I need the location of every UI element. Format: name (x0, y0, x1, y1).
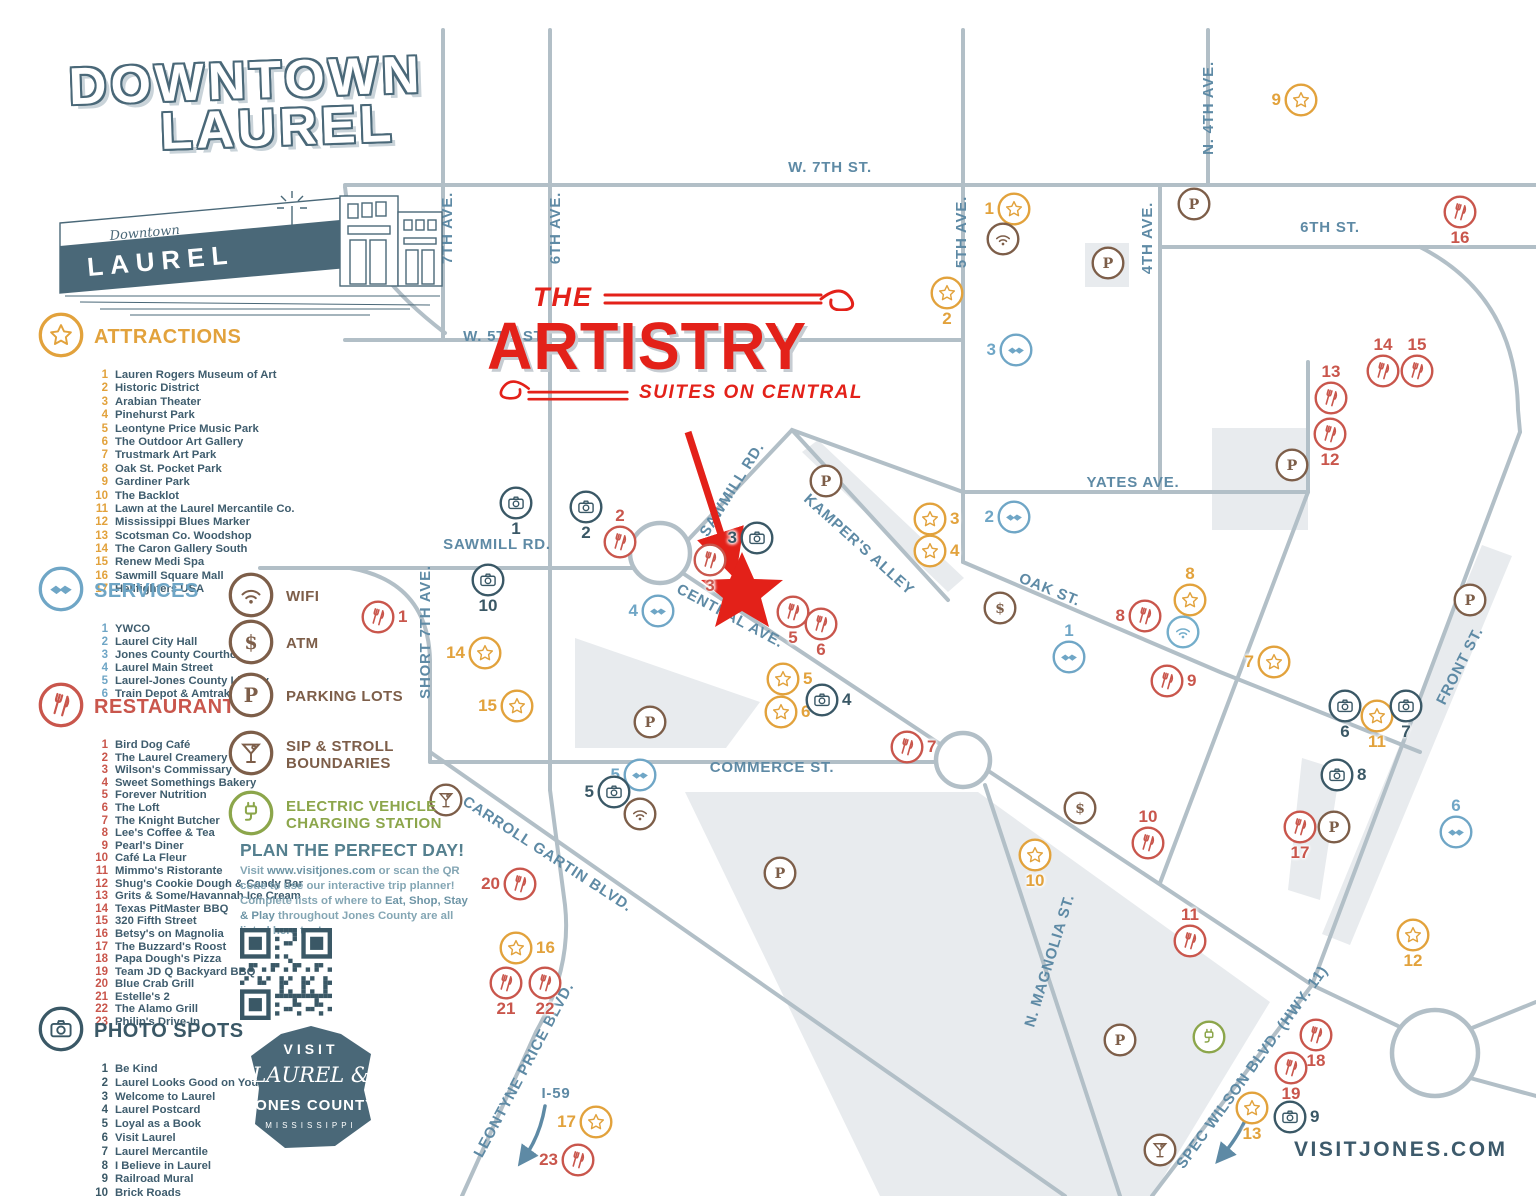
legend-item: 5Leontyne Price Music Park (86, 423, 268, 436)
artistry-logo: THE ARTISTRY SUITES ON CENTRAL (487, 282, 863, 406)
parking-map-icon (763, 856, 797, 890)
photo-spot-marker-9: 9 (1273, 1100, 1307, 1134)
restaurant-marker-12: 12 (1313, 417, 1347, 451)
photo-spot-marker-8: 8 (1320, 758, 1354, 792)
service-marker-4: 4 (641, 594, 675, 628)
restaurant-marker-15: 15 (1400, 354, 1434, 388)
legend-item: 3Welcome to Laurel (86, 1091, 268, 1105)
photo-spots-camera-icon (38, 1006, 84, 1057)
photo-spot-marker-7: 7 (1389, 689, 1423, 723)
martini-icon (228, 730, 274, 781)
map-title: DOWNTOWN LAUREL (50, 51, 443, 160)
restaurant-marker-8: 8 (1128, 599, 1162, 633)
parking-icon (228, 672, 274, 723)
parking-map-icon (809, 464, 843, 498)
wifi-map-icon (986, 222, 1020, 256)
legend-item: 5Loyal as a Book (86, 1118, 268, 1132)
map-title-line2: LAUREL (112, 99, 443, 158)
qr-code (240, 928, 332, 1020)
badge-laurel: LAUREL & (251, 1063, 369, 1087)
atm-map-icon (1063, 791, 1097, 825)
legend-item: 1Lauren Rogers Museum of Art (86, 369, 268, 382)
wifi-icon (228, 572, 274, 623)
restaurant-marker-22: 22 (528, 966, 562, 1000)
legend-photo-spots: PHOTO SPOTS 1Be Kind2Laurel Looks Good o… (38, 1006, 268, 1201)
restaurant-marker-14: 14 (1366, 354, 1400, 388)
artistry-name: ARTISTRY (487, 313, 840, 380)
martini-map-icon (1143, 1133, 1177, 1167)
photo-spot-marker-1: 1 (499, 486, 533, 520)
attraction-marker-15: 15 (500, 689, 534, 723)
attraction-marker-7: 7 (1257, 645, 1291, 679)
restaurant-marker-9: 9 (1150, 664, 1184, 698)
legend-item: 3Arabian Theater (86, 396, 268, 409)
restaurant-marker-18: 18 (1299, 1018, 1333, 1052)
legend-item: 7Laurel Mercantile (86, 1146, 268, 1160)
ev-map-icon (1192, 1020, 1226, 1054)
badge-jones: JONES COUNTY (246, 1097, 376, 1114)
services-handshake-icon (38, 566, 84, 617)
legend-item: 11Lawn at the Laurel Mercantile Co. (86, 503, 268, 516)
attractions-title: ATTRACTIONS (94, 326, 241, 349)
restaurants-fork-icon (38, 682, 84, 733)
service-marker-2: 2 (997, 500, 1031, 534)
legend-item: 10Brick Roads (86, 1187, 268, 1201)
attraction-marker-9: 9 (1284, 83, 1318, 117)
visit-jones-badge: VISIT LAUREL & JONES COUNTY MISSISSIPPI (243, 1022, 379, 1156)
attraction-marker-3: 3 (913, 502, 947, 536)
attraction-marker-17: 17 (579, 1105, 613, 1139)
legend-item: 4Pinehurst Park (86, 409, 268, 422)
restaurant-marker-21: 21 (489, 966, 523, 1000)
downtown-building-illustration: Downtown LAUREL (40, 168, 455, 318)
attraction-marker-13: 13 (1235, 1091, 1269, 1125)
attraction-marker-8: 8 (1173, 583, 1207, 617)
restaurant-marker-17: 17 (1283, 810, 1317, 844)
legend-item: 9Railroad Mural (86, 1173, 268, 1187)
amenity-martini: SIP & STROLL BOUNDARIES (228, 730, 446, 781)
photo-spot-marker-2: 2 (569, 490, 603, 524)
amenity-wifi: WIFI (228, 572, 446, 623)
attraction-marker-14: 14 (468, 636, 502, 670)
attraction-marker-2: 2 (930, 276, 964, 310)
restaurant-marker-20: 20 (503, 867, 537, 901)
restaurant-marker-16: 16 (1443, 195, 1477, 229)
amenity-atm: ATM (228, 619, 446, 670)
legend-item: 2Historic District (86, 382, 268, 395)
restaurants-title: RESTAURANTS (94, 696, 249, 719)
photo-spots-title: PHOTO SPOTS (94, 1020, 244, 1043)
parking-map-icon (1453, 583, 1487, 617)
attraction-marker-12: 12 (1396, 918, 1430, 952)
legend-item: 8I Believe in Laurel (86, 1160, 268, 1174)
services-title: SERVICES (94, 580, 199, 603)
badge-visit: VISIT (283, 1041, 338, 1057)
atm-map-icon (983, 591, 1017, 625)
legend-item: 6The Outdoor Art Gallery (86, 436, 268, 449)
legend-attractions: ATTRACTIONS 1Lauren Rogers Museum of Art… (38, 312, 268, 597)
website-url: VISITJONES.COM (1294, 1138, 1508, 1162)
attraction-marker-1: 1 (997, 192, 1031, 226)
legend-item: 6Visit Laurel (86, 1132, 268, 1146)
legend-item: 10The Backlot (86, 490, 268, 503)
parking-map-icon (633, 705, 667, 739)
amenities-legend: WIFIATMPARKING LOTSSIP & STROLL BOUNDARI… (228, 572, 438, 832)
parking-map-icon (1177, 187, 1211, 221)
restaurant-marker-19: 19 (1274, 1051, 1308, 1085)
legend-item: 2Laurel Looks Good on You (86, 1077, 268, 1091)
restaurant-marker-11: 11 (1173, 924, 1207, 958)
legend-item: 13Scotsman Co. Woodshop (86, 530, 268, 543)
restaurant-marker-7: 7 (890, 730, 924, 764)
wifi-map-icon (1166, 615, 1200, 649)
legend-item: 4Laurel Postcard (86, 1104, 268, 1118)
attraction-marker-10: 10 (1018, 838, 1052, 872)
photo-spot-marker-10: 10 (471, 563, 505, 597)
ev-icon (228, 790, 274, 841)
amenity-ev: ELECTRIC VEHICLE CHARGING STATION (228, 790, 446, 841)
photo-spot-marker-3: 3 (740, 521, 774, 555)
restaurant-marker-10: 10 (1131, 826, 1165, 860)
attraction-marker-16: 16 (499, 931, 533, 965)
parking-map-icon (1103, 1023, 1137, 1057)
service-marker-1: 1 (1052, 640, 1086, 674)
restaurant-marker-13: 13 (1314, 381, 1348, 415)
photo-spot-marker-6: 6 (1328, 689, 1362, 723)
legend-item: 12Mississippi Blues Marker (86, 516, 268, 529)
attraction-marker-4: 4 (913, 534, 947, 568)
legend-item: 1Be Kind (86, 1063, 268, 1077)
attraction-marker-5: 5 (766, 662, 800, 696)
restaurant-marker-23: 23 (561, 1143, 595, 1177)
plan-box: PLAN THE PERFECT DAY! Visit www.visitjon… (240, 840, 468, 939)
flourish-top (603, 285, 858, 311)
restaurant-marker-2: 2 (603, 525, 637, 559)
legend-item: 9Gardiner Park (86, 476, 268, 489)
legend-item: 8Oak St. Pocket Park (86, 463, 268, 476)
restaurant-marker-6: 6 (804, 607, 838, 641)
legend-item: 14The Caron Gallery South (86, 543, 268, 556)
atm-icon (228, 619, 274, 670)
badge-ms: MISSISSIPPI (265, 1121, 357, 1130)
legend-item: 7Trustmark Art Park (86, 449, 268, 462)
wifi-map-icon (623, 797, 657, 831)
attraction-marker-6: 6 (764, 695, 798, 729)
artistry-tagline: SUITES ON CENTRAL (639, 382, 863, 404)
plan-url: www.visitjones.com (267, 865, 375, 877)
service-marker-6: 6 (1439, 815, 1473, 849)
attractions-star-icon (38, 312, 84, 363)
parking-map-icon (1317, 810, 1351, 844)
plan-heading: PLAN THE PERFECT DAY! (240, 840, 468, 861)
amenity-parking: PARKING LOTS (228, 672, 446, 723)
restaurant-marker-3: 3 (693, 543, 727, 577)
photo-spot-marker-4: 4 (805, 683, 839, 717)
parking-map-icon (1275, 448, 1309, 482)
service-marker-3: 3 (999, 333, 1033, 367)
parking-map-icon (1091, 246, 1125, 280)
